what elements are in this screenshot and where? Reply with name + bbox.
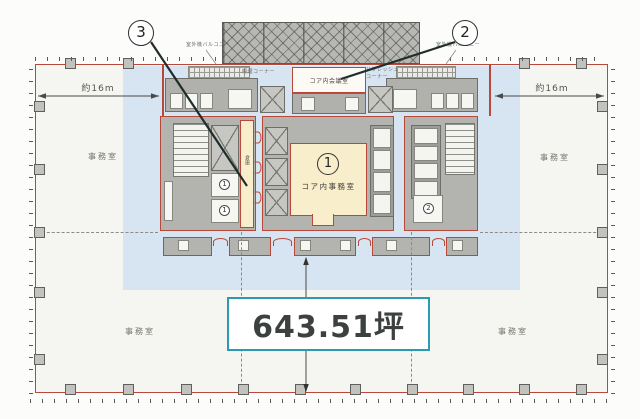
office-label-bottom-right: 事務室 (483, 326, 543, 337)
centerline (480, 232, 606, 233)
office-divider-right (489, 64, 491, 116)
elevator-shaft-center (265, 158, 288, 186)
dimension-right-label: 約16m (522, 81, 582, 94)
refresh-corner-label-2: コーナー (366, 73, 406, 80)
column (34, 287, 45, 298)
door-arc (255, 162, 262, 174)
area-box: 643.51坪 (227, 297, 430, 351)
door-arc (358, 238, 371, 246)
callout-1-circle: 1 (317, 153, 339, 175)
elevator-shaft-center (265, 189, 288, 216)
washroom (393, 89, 417, 109)
elevator-car (373, 150, 391, 170)
elevator-shaft-center (265, 127, 288, 155)
utility-room-3-number: 2 (423, 203, 434, 214)
column (295, 384, 306, 395)
toilet-block-right (386, 78, 478, 112)
elevator-car (373, 194, 391, 214)
elevator-bank-center (370, 125, 394, 217)
column (34, 101, 45, 112)
utility-strip (164, 181, 173, 221)
elevator-car (414, 163, 438, 179)
door-arc (213, 238, 228, 246)
centerline (37, 232, 158, 233)
elevator-car (414, 128, 438, 144)
column (463, 384, 474, 395)
toilet-stall (431, 93, 444, 109)
toilet-stall (461, 93, 474, 109)
office-label-left: 事務室 (73, 151, 133, 162)
core-office-notch (312, 214, 334, 226)
storage-strip-label: 倉庫 (244, 155, 251, 165)
toilet-stall (185, 93, 198, 109)
rooftop-structure (222, 22, 420, 64)
toilet-block-left (165, 78, 258, 112)
facade-pier (178, 240, 189, 251)
vestibule-closet (301, 97, 315, 111)
column (407, 384, 418, 395)
tick-strip-right (611, 64, 615, 394)
column (181, 384, 192, 395)
area-value: 643.51坪 (252, 302, 405, 346)
callout-2-circle: 2 (452, 20, 478, 46)
column (34, 354, 45, 365)
toilet-stall (446, 93, 459, 109)
column (350, 384, 361, 395)
stairs-right (445, 123, 475, 175)
core-meeting-room-label: コア内会議室 (293, 76, 365, 85)
column (597, 287, 608, 298)
column (34, 164, 45, 175)
toilet-stall (170, 93, 183, 109)
door-arc (255, 132, 262, 144)
washroom (228, 89, 252, 109)
column (597, 164, 608, 175)
facade-pier (386, 240, 397, 251)
office-label-right: 事務室 (525, 152, 585, 163)
core-office-label: コア内事務室 (290, 181, 367, 192)
column (576, 384, 587, 395)
office-divider-left (162, 64, 164, 116)
door-arc (432, 238, 445, 246)
toilet-stall (200, 93, 213, 109)
callout-3-circle: 3 (128, 20, 154, 46)
core-meeting-room: コア内会議室 (292, 67, 366, 93)
column (34, 227, 45, 238)
meeting-vestibule (292, 93, 366, 114)
door-arc (255, 192, 262, 204)
core-right: 2 (404, 116, 478, 231)
tick-strip-top-right (450, 57, 606, 61)
floor-plan: コア内会議室 室外機バルコニー 室外機バルコニー 喫煙コーナー リフレッシュ コ… (0, 0, 640, 419)
facade-pier (452, 240, 463, 251)
elevator-car (373, 172, 391, 192)
elevator-shaft-left (211, 125, 239, 171)
dimension-left-label: 約16m (68, 81, 128, 94)
facade-pier (238, 240, 249, 251)
elevator-car (414, 181, 438, 197)
balcony-left-label: 室外機バルコニー (170, 41, 246, 48)
elevator-car (414, 146, 438, 162)
tick-strip-bottom (30, 399, 616, 403)
tick-strip-top-left (35, 57, 222, 61)
utility-room-1-number: 1 (219, 179, 230, 190)
shaft-box-left (260, 86, 285, 113)
vestibule-closet (345, 97, 359, 111)
smoking-corner-label: 喫煙コーナー (242, 68, 288, 75)
column (65, 384, 76, 395)
office-label-bottom-left: 事務室 (110, 326, 170, 337)
column (597, 354, 608, 365)
facade-pier (340, 240, 351, 251)
facade-module (229, 237, 271, 256)
refresh-corner-label-1: リフレッシュ (366, 66, 406, 73)
utility-room-2-number: 1 (219, 205, 230, 216)
shaft-box-right (368, 86, 393, 113)
facade-module (372, 237, 430, 256)
column (597, 101, 608, 112)
storage-strip: 倉庫 (240, 120, 254, 228)
column (123, 384, 134, 395)
stairs-left (173, 123, 209, 177)
door-arc (273, 238, 292, 246)
elevator-car (373, 128, 391, 148)
tick-strip-left (29, 64, 33, 394)
facade-pier (300, 240, 311, 251)
column (597, 227, 608, 238)
column (519, 384, 530, 395)
column (238, 384, 249, 395)
elevator-bank-right (411, 125, 441, 199)
